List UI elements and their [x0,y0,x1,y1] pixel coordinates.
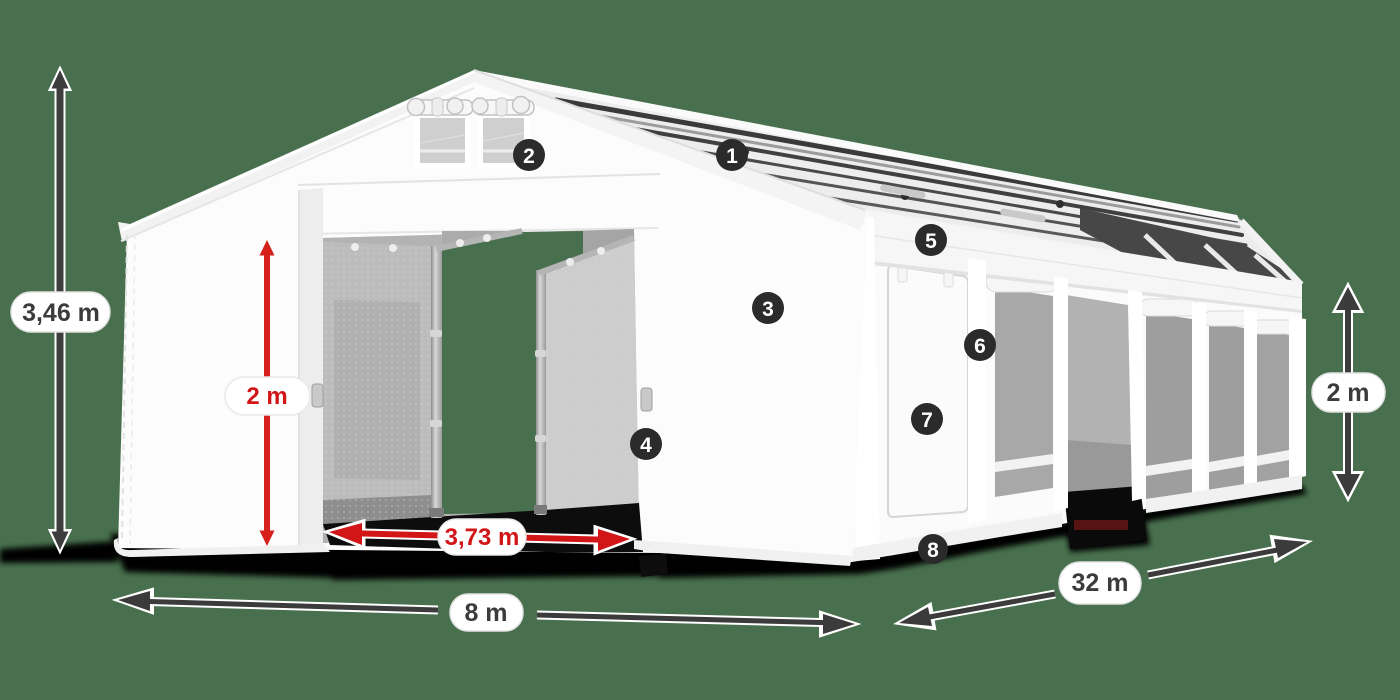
svg-text:6: 6 [974,335,986,358]
svg-text:2: 2 [523,145,535,168]
svg-text:4: 4 [640,434,652,457]
svg-text:1: 1 [726,145,738,168]
svg-text:7: 7 [921,409,933,432]
svg-text:3,46 m: 3,46 m [22,299,100,327]
svg-text:32 m: 32 m [1072,569,1129,597]
svg-text:8: 8 [927,539,939,562]
svg-text:3,73 m: 3,73 m [445,524,520,551]
svg-text:2 m: 2 m [246,383,287,410]
svg-text:3: 3 [762,298,774,321]
svg-text:2 m: 2 m [1326,379,1369,407]
svg-text:8 m: 8 m [464,599,507,627]
svg-text:5: 5 [925,230,937,253]
